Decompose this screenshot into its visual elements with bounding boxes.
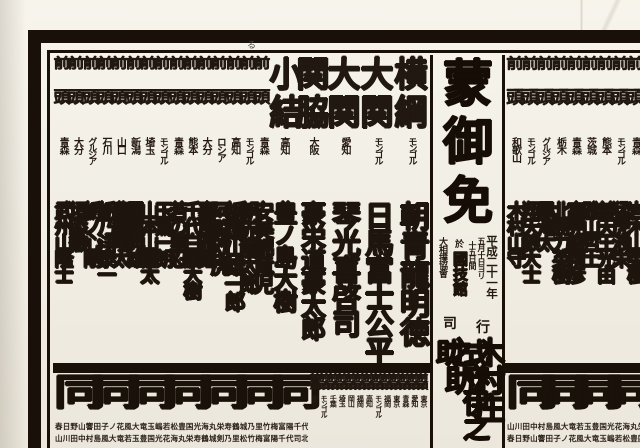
rank-label-yokozuna: 横綱: [393, 56, 428, 135]
origin-label: モンゴル: [320, 395, 327, 417]
fine-print-line: 山川田中村島風大竜若玉豊国光花海丸栄寿鶴城剣乃里松竹梅富陽千代司北東西南春夏秋冬…: [507, 421, 640, 433]
origin-label: 埼玉: [143, 137, 153, 153]
banzuke-column-west-ozeki2: 大関 愛知 琴光喜啓司: [327, 56, 360, 361]
venue-prefix: 於: [455, 237, 464, 250]
paper-crease: [580, 0, 583, 34]
juryo-column: 前頭東京: [419, 374, 428, 448]
venue-name: 國技館: [450, 251, 471, 296]
origin-label: 愛知: [411, 395, 418, 406]
origin-label: 茨城: [585, 137, 595, 153]
paper-edge-shadow: [0, 0, 26, 448]
fine-print-line: 春日野山響田子ノ花風大竜玉嶋若松豊国光海丸栄寿鶴城乃里竹梅富陽千代司川村中島津軽…: [507, 433, 640, 445]
fine-print-strip: 山川田中村島風大竜若玉豊国光花海丸栄寿鶴城剣乃里松竹梅富陽千代司北東西南春夏秋冬…: [507, 421, 640, 447]
origin-label: 青森: [257, 137, 267, 153]
banzuke-column-east-m8: 前頭 青森 岩木山英樹: [627, 56, 640, 361]
origin-label: 福岡: [356, 395, 363, 406]
outer-frame-left: [28, 30, 41, 448]
origin-label: グルジア: [86, 137, 95, 163]
east-block: 前頭 和歌山 木村山守 前頭 モンゴル 翔天狼大士 前頭 グルジア 黒海太 前頭…: [505, 55, 640, 448]
origin-label: ロシア: [214, 137, 224, 161]
banzuke-column-west-sekiwake: 関脇 大阪 豪栄道豪太郎: [296, 56, 327, 361]
origin-label: 高知: [278, 137, 288, 153]
origin-label: 熊本: [186, 137, 196, 153]
fine-print-line: 春日野山響田子ノ花風大竜玉嶋若松豊国光海丸栄寿鶴城乃里竹梅富陽千代司川村中島津軽…: [55, 421, 308, 433]
shikona: 朝青龍明徳: [396, 201, 426, 346]
shikona: 琴光喜啓司: [329, 201, 358, 336]
origin-label: 大阪: [307, 137, 317, 153]
banzuke-column-west-ozeki1: 大関 モンゴル 日馬富士公平: [360, 56, 393, 361]
origin-label: モンゴル: [158, 137, 167, 163]
ditto-mark: 同: [605, 375, 640, 411]
ditto-mark: 同: [270, 375, 312, 411]
rank-label-sekiwake: 関脇: [296, 56, 327, 135]
outer-frame-top: [28, 30, 640, 43]
paper-crease: [598, 0, 624, 30]
shikona: 豪栄道豪太郎: [299, 201, 324, 339]
rank-mark-maegashira: 前頭: [255, 56, 269, 135]
origin-label: 千葉: [329, 395, 336, 406]
license-char: 御: [441, 117, 495, 167]
origin-label: 福岡: [384, 395, 391, 406]
rank-label-ozeki: 大関: [327, 56, 360, 135]
gyoji-name-shikimori: 式守伊之助: [433, 339, 487, 448]
gyoji-label-left: 司: [443, 313, 457, 333]
origin-label: 青森: [630, 137, 640, 153]
origin-label: 大分: [71, 137, 81, 153]
origin-label: グルジア: [540, 137, 549, 163]
license-char: 蒙: [441, 59, 495, 109]
inner-frame-top: [47, 50, 640, 53]
rank-label-ozeki: 大関: [360, 56, 393, 135]
origin-label: 岡山: [347, 395, 354, 406]
origin-label: 青森: [402, 395, 409, 406]
fine-print-strip: 春日野山響田子ノ花風大竜玉嶋若松豊国光海丸栄寿鶴城乃里竹梅富陽千代司川村中島津軽…: [55, 421, 308, 447]
origin-label: 高知: [366, 395, 373, 406]
origin-label: モンゴル: [615, 137, 624, 163]
west-block: 前頭 青森 武州山隆士 前頭 大分 垣添徹 前頭 グルジア 栃ノ心剛 前頭 石川…: [53, 55, 430, 448]
fine-print-line: 山川田中村島風大竜若玉豊国光花海丸栄寿鶴城剣乃里松竹梅富陽千代司北東西南春夏秋冬…: [55, 433, 308, 445]
banzuke-sheet: る 前頭 青森 武州山隆士 前頭 大分 垣添徹 前頭 グルジア 栃ノ心剛 前頭 …: [0, 0, 640, 448]
west-makuuchi-columns: 前頭 青森 武州山隆士 前頭 大分 垣添徹 前頭 グルジア 栃ノ心剛 前頭 石川…: [55, 56, 428, 361]
origin-label: 愛知: [339, 137, 349, 153]
origin-label: 埼玉: [338, 395, 345, 406]
origin-label: 山口: [114, 137, 124, 153]
organizer-label: 大相撲協會: [436, 237, 449, 277]
juryo-ditto-row-east: 同 同 同 同: [509, 375, 640, 419]
rank-mark-maegashira: 前頭: [627, 56, 640, 135]
origin-label: モンゴル: [244, 137, 253, 163]
origin-label: モンゴル: [372, 137, 381, 163]
origin-label: 栃木: [555, 137, 565, 153]
origin-label: 東京: [393, 395, 400, 406]
inner-frame-left: [47, 50, 50, 448]
origin-label: 和歌山: [510, 137, 520, 161]
rank-label-komusubi: 小結: [269, 56, 296, 135]
origin-label: 青森: [172, 137, 182, 153]
juryo-ditto-row-west: 同 同 同 同 同 同 同: [57, 375, 309, 419]
origin-label: 石川: [100, 137, 110, 153]
corner-mark: る: [247, 38, 256, 51]
shikona: 岩木山英樹: [625, 201, 640, 281]
origin-label: 大分: [200, 137, 210, 153]
center-strip: 蒙 御 免 平成二十一年 五月十日ヨリ 十五日間 於 國技館 大相撲協會 行 司…: [430, 55, 505, 448]
license-char: 免: [441, 176, 495, 226]
origin-label: 東京: [420, 395, 427, 406]
origin-label: 青森: [57, 137, 67, 153]
origin-label: 新潟: [129, 137, 139, 153]
banzuke-column-west-yokozuna: 横綱 モンゴル 朝青龍明徳: [393, 56, 428, 361]
east-makuuchi-columns: 前頭 和歌山 木村山守 前頭 モンゴル 翔天狼大士 前頭 グルジア 黒海太 前頭…: [507, 56, 640, 361]
origin-label: モンゴル: [525, 137, 534, 163]
origin-label: 青森: [570, 137, 580, 153]
shikona: 豊ノ島大樹: [271, 201, 295, 311]
origin-label: モンゴル: [375, 395, 382, 417]
origin-label: 熊本: [600, 137, 610, 153]
banzuke-column-west-komusubi: 小結 高知 豊ノ島大樹: [269, 56, 296, 361]
origin-label: 東京: [311, 395, 318, 406]
juryo-mini-section: 前頭東京 前頭モンゴル 前頭千葉 前頭埼玉 前頭岡山 前頭福岡 前頭高知 前頭モ…: [310, 374, 428, 448]
shikona: 日馬富士公平: [362, 201, 391, 363]
origin-label: 高知: [229, 137, 239, 153]
origin-label: モンゴル: [406, 137, 415, 163]
banzuke-column-west-m1: 前頭 青森 安美錦竜児: [255, 56, 269, 361]
gyoji-label-right: 行: [476, 317, 490, 337]
